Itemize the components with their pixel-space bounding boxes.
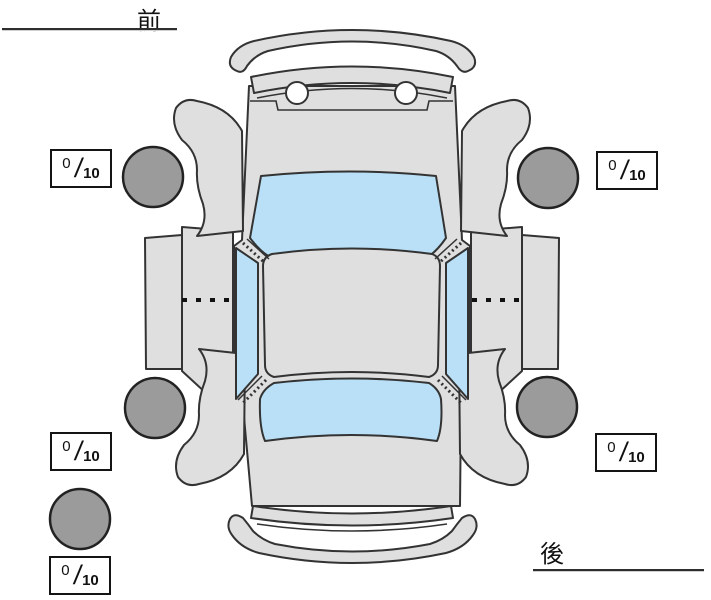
rating-rear-left-max: 10 xyxy=(83,449,100,464)
rating-rear-left[interactable]: 0 / 10 xyxy=(50,432,112,471)
tire-spare xyxy=(50,489,110,549)
car-top-view-graphic xyxy=(0,0,711,600)
rating-spare-max: 10 xyxy=(82,573,99,588)
rating-front-left-max: 10 xyxy=(83,166,100,181)
rear-bumper-band xyxy=(251,506,453,526)
tire-front-right xyxy=(518,148,578,208)
roof-panel xyxy=(263,249,440,378)
rear-label: 後 xyxy=(540,534,565,569)
tire-rear-right xyxy=(517,377,577,437)
right-headlight-icon xyxy=(395,82,417,104)
rear-divider-line xyxy=(533,569,704,572)
rating-rear-right-value: 0 xyxy=(607,440,615,455)
tire-front-left xyxy=(123,147,183,207)
rating-front-left-value: 0 xyxy=(62,156,70,171)
right-side-window xyxy=(446,248,468,399)
tire-rear-left xyxy=(125,378,185,438)
rating-front-right[interactable]: 0 / 10 xyxy=(596,151,658,190)
left-headlight-icon xyxy=(286,82,308,104)
front-left-fender xyxy=(174,100,243,236)
rear-window xyxy=(260,379,442,442)
rating-rear-right-max: 10 xyxy=(628,450,645,465)
left-sill-panel xyxy=(145,235,182,369)
front-divider-line xyxy=(2,28,177,31)
rating-rear-right[interactable]: 0 / 10 xyxy=(595,433,657,472)
vehicle-condition-diagram: 前 後 0 / 10 0 / 10 0 / 10 0 / 10 0 / 10 xyxy=(0,0,711,600)
rating-rear-left-value: 0 xyxy=(62,439,70,454)
rating-spare[interactable]: 0 / 10 xyxy=(49,556,111,595)
right-sill-panel xyxy=(522,235,559,369)
rating-front-right-value: 0 xyxy=(608,158,616,173)
rating-front-right-max: 10 xyxy=(629,168,646,183)
rating-front-left[interactable]: 0 / 10 xyxy=(50,149,112,188)
rating-spare-value: 0 xyxy=(61,563,69,578)
windshield xyxy=(250,172,446,260)
left-side-window xyxy=(236,248,258,399)
